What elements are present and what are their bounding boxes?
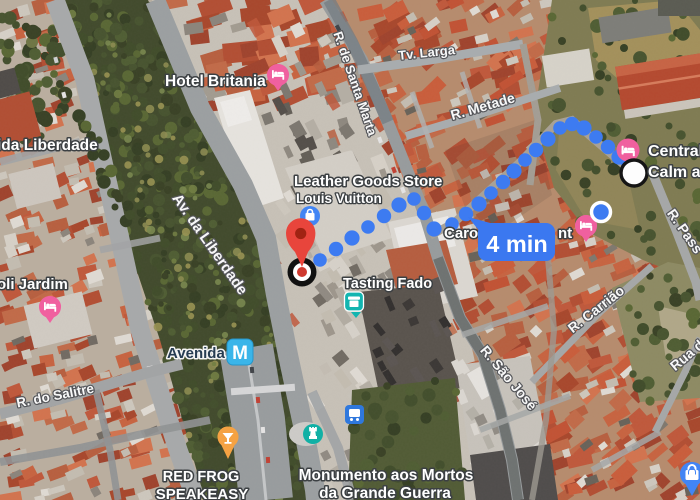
svg-text:ida Liberdade: ida Liberdade	[0, 137, 98, 154]
svg-text:RED FROG: RED FROG	[163, 469, 240, 485]
svg-text:Calm an: Calm an	[648, 164, 700, 181]
svg-text:Avenida: Avenida	[167, 345, 225, 362]
svg-text:Monumento aos Mortos: Monumento aos Mortos	[299, 467, 474, 484]
svg-text:Tasting Fado: Tasting Fado	[343, 276, 432, 292]
svg-text:da Grande Guerra: da Grande Guerra	[319, 485, 451, 500]
svg-text:Hotel Britania: Hotel Britania	[165, 73, 266, 90]
svg-text:M: M	[232, 343, 248, 364]
svg-text:Louis Vuitton: Louis Vuitton	[296, 191, 382, 206]
svg-text:nt: nt	[558, 225, 572, 242]
svg-text:4 min: 4 min	[486, 231, 547, 257]
svg-text:Leather Goods Store: Leather Goods Store	[294, 173, 442, 190]
svg-text:Central: Central	[648, 143, 700, 160]
svg-text:SPEAKEASY: SPEAKEASY	[156, 486, 249, 500]
svg-text:Caro: Caro	[444, 225, 478, 242]
svg-text:oli Jardim: oli Jardim	[0, 276, 68, 293]
